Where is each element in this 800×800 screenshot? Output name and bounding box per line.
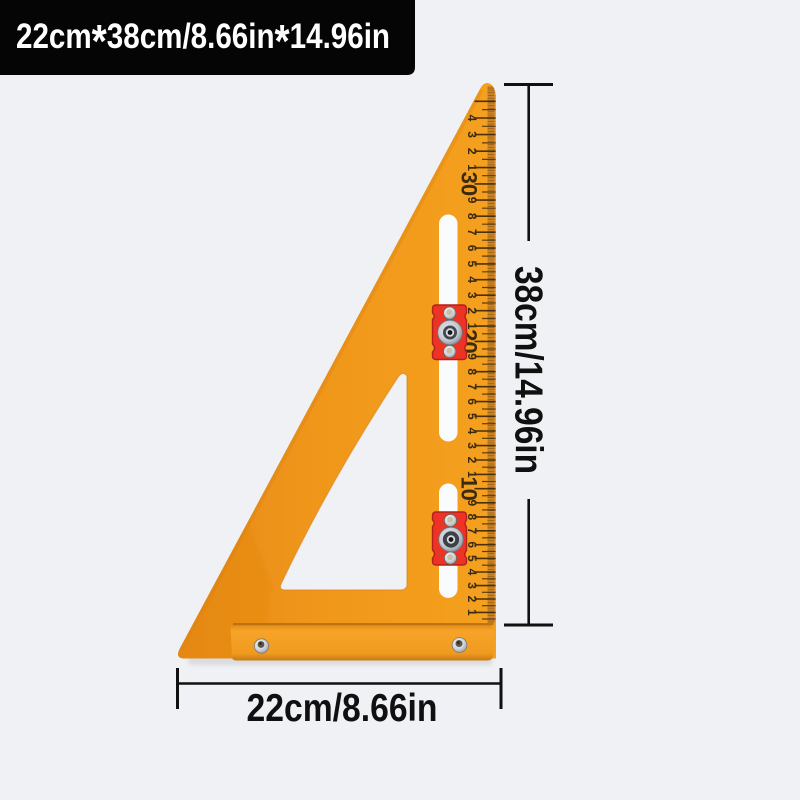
svg-text:6: 6 bbox=[465, 398, 479, 405]
svg-text:2: 2 bbox=[465, 148, 479, 155]
svg-text:7: 7 bbox=[465, 383, 479, 390]
svg-text:4: 4 bbox=[465, 115, 479, 122]
svg-text:30: 30 bbox=[457, 172, 482, 196]
svg-text:4: 4 bbox=[465, 276, 479, 283]
svg-text:2: 2 bbox=[465, 457, 479, 464]
svg-text:38cm/14.96in: 38cm/14.96in bbox=[507, 266, 550, 474]
svg-text:3: 3 bbox=[465, 292, 479, 299]
svg-text:4: 4 bbox=[465, 569, 479, 576]
svg-text:10: 10 bbox=[457, 476, 482, 500]
svg-text:8: 8 bbox=[465, 368, 479, 375]
svg-text:2: 2 bbox=[465, 596, 479, 603]
svg-text:6: 6 bbox=[465, 245, 479, 252]
svg-text:5: 5 bbox=[465, 261, 479, 268]
svg-text:1: 1 bbox=[465, 471, 479, 478]
svg-text:3: 3 bbox=[465, 131, 479, 138]
svg-text:1: 1 bbox=[465, 609, 479, 616]
svg-text:1: 1 bbox=[465, 164, 479, 171]
svg-text:3: 3 bbox=[465, 582, 479, 589]
svg-text:3: 3 bbox=[465, 442, 479, 449]
svg-text:9: 9 bbox=[465, 197, 479, 204]
svg-text:5: 5 bbox=[465, 413, 479, 420]
svg-text:7: 7 bbox=[465, 229, 479, 236]
svg-text:8: 8 bbox=[465, 213, 479, 220]
svg-text:22cm/8.66in: 22cm/8.66in bbox=[247, 687, 438, 730]
svg-text:4: 4 bbox=[465, 428, 479, 435]
